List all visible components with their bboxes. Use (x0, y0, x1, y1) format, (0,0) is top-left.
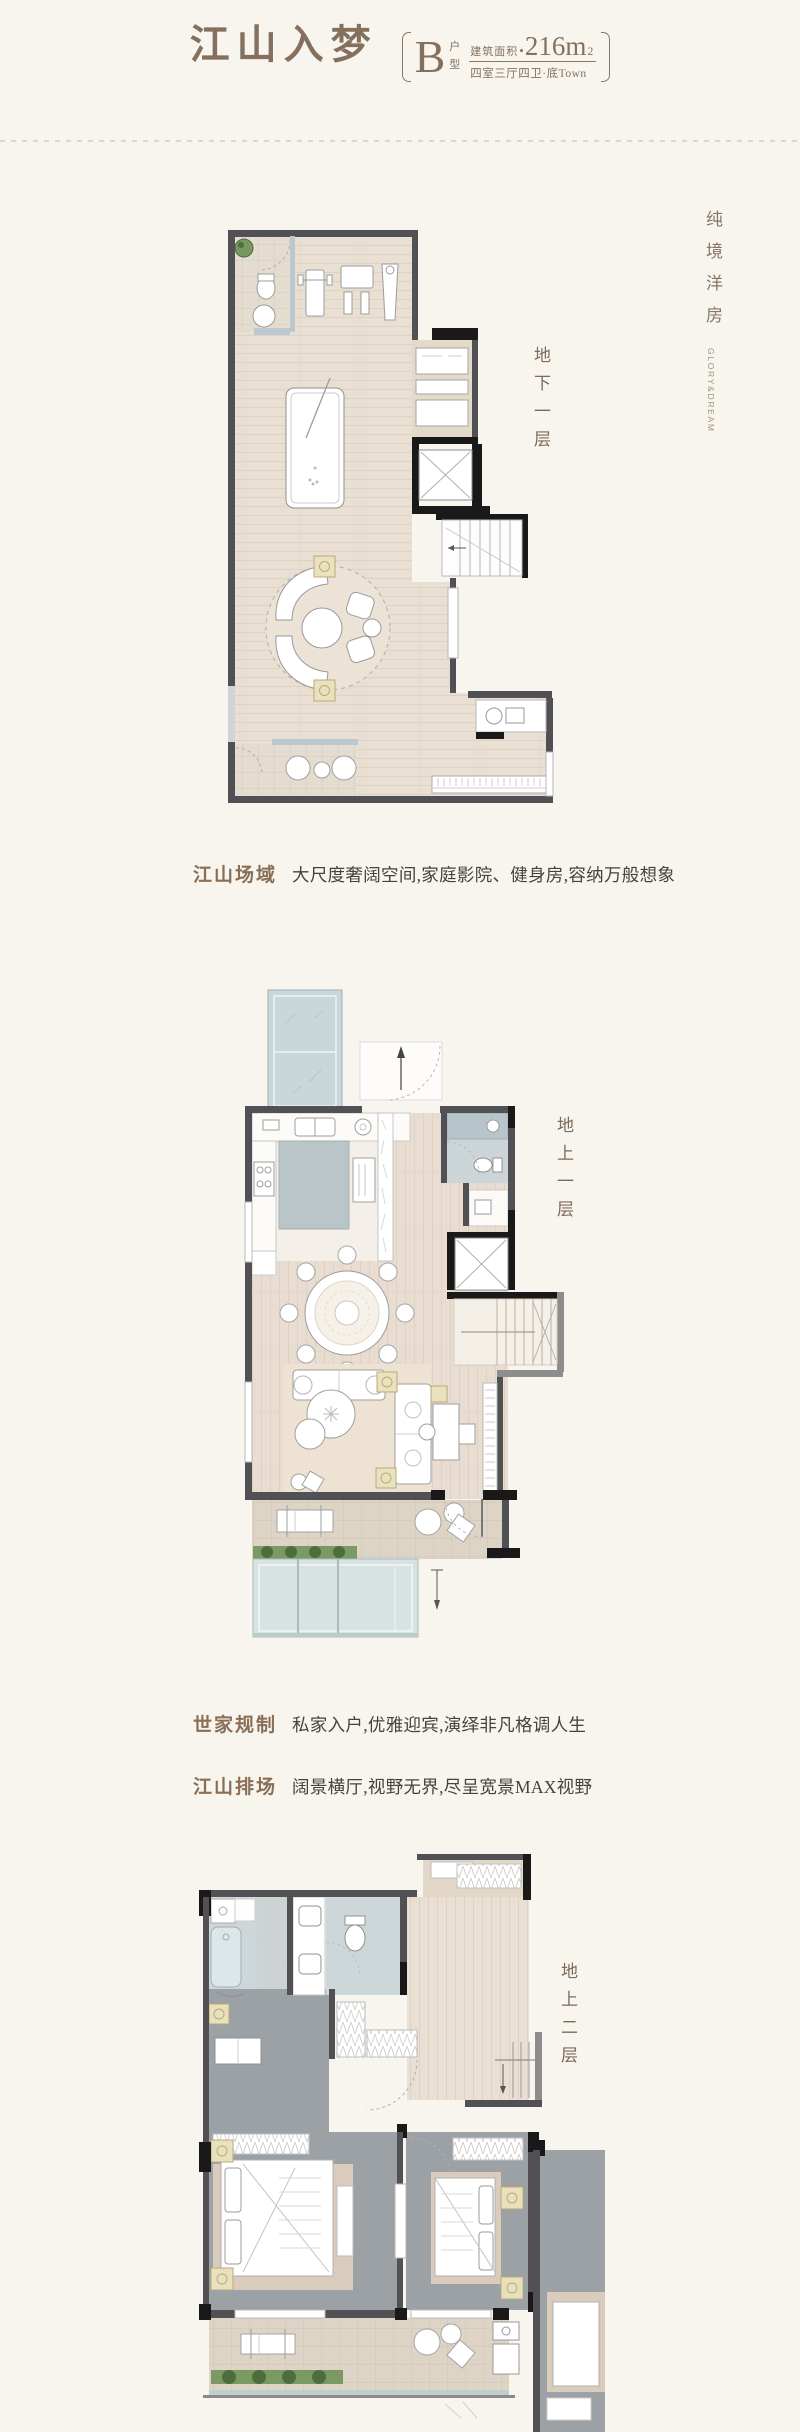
living-room (283, 1364, 431, 1494)
area-value: 216m (525, 33, 587, 60)
second-floor-stairs (465, 2032, 542, 2107)
header: 江山入梦 B 户 型 建筑面积 • 216m 2 四室三厅四卫·底Town (0, 22, 800, 82)
caption-family-text: 私家入户,优雅迎宾,演绎非凡格调人生 (292, 1712, 586, 1737)
unit-spec: 四室三厅四卫·底Town (469, 62, 596, 81)
dashed-separator (0, 140, 800, 142)
unit-info: 建筑面积 • 216m 2 四室三厅四卫·底Town (469, 32, 596, 82)
entry-porch (360, 1042, 442, 1100)
unit-badge: B 户 型 建筑面积 • 216m 2 四室三厅四卫·底Town (402, 32, 611, 82)
area-label: 建筑面积 (470, 43, 518, 59)
page-title: 江山入梦 (190, 22, 378, 68)
bracket-left-icon (402, 32, 411, 82)
unit-type-bottom: 型 (449, 57, 461, 75)
second-floor-plan (195, 1842, 615, 2432)
first-floor-elevator (447, 1232, 515, 1290)
bullet-icon: • (519, 43, 524, 59)
glass-railing (253, 1559, 418, 1637)
caption-view: 江山排场 阔景横厅,视野无界,尽呈宽景MAX视野 (193, 1772, 592, 1799)
unit-letter: B (415, 32, 446, 82)
side-banner-en: GLORY&DREAM (706, 348, 716, 433)
tv-console (416, 348, 468, 426)
caption-family: 世家规制 私家入户,优雅迎宾,演绎非凡格调人生 (193, 1710, 586, 1737)
glass-canopy (268, 990, 342, 1112)
side-banner-cn: 纯境洋房 (700, 210, 725, 338)
basement-floor-plan (210, 228, 560, 813)
caption-basement-title: 江山场域 (193, 860, 277, 887)
caption-view-text: 阔景横厅,视野无界,尽呈宽景MAX视野 (292, 1774, 592, 1799)
first-floor-plan (235, 962, 575, 1652)
basement-stairs (436, 514, 528, 578)
caption-view-title: 江山排场 (193, 1772, 277, 1799)
bracket-right-icon (601, 32, 610, 82)
caption-basement: 江山场域 大尺度奢阔空间,家庭影院、健身房,容纳万般想象 (193, 860, 675, 887)
billiard-table (286, 378, 344, 508)
unit-type-label: 户 型 (449, 32, 461, 82)
unit-type-top: 户 (449, 39, 461, 57)
caption-basement-text: 大尺度奢阔空间,家庭影院、健身房,容纳万般想象 (292, 862, 675, 887)
area-row: 建筑面积 • 216m 2 (469, 33, 596, 62)
brochure-page: { "header": { "title": "江山入梦", "unit": {… (0, 0, 800, 2432)
down-stair-glyph (431, 1570, 443, 1610)
caption-family-title: 世家规制 (193, 1710, 277, 1737)
area-sup: 2 (587, 44, 593, 59)
